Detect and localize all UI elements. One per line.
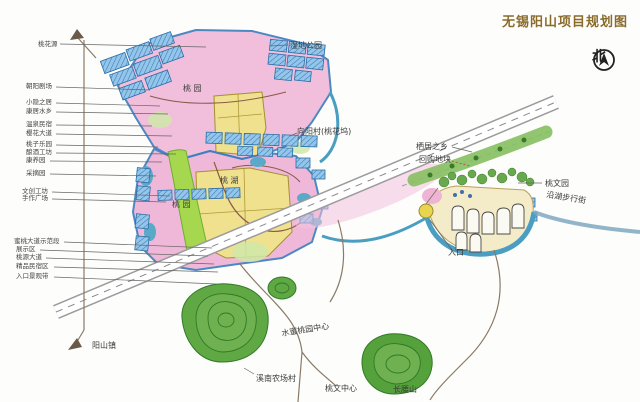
left-legend: 桃花源 朝阳剧场 小隐之居 康居水乡 温泉民宿 樱花大道 桃子乐园 酿酒工坊 康… [14,39,60,280]
label-orchard-top: 桃 园 [183,83,202,93]
label-wetland-park: 湿地公园 [290,40,322,50]
label-orchard-mid: 桃 园 [172,199,191,209]
legend-item: 小隐之居 [26,97,53,106]
legend-item: 朝阳剧场 [26,81,53,90]
label-lakeside-walk-street: 沿湖步行街 [546,189,587,205]
label-peach-culture-center: 桃文中心 [325,383,357,393]
legend-item: 桃子乐园 [26,139,52,148]
legend-item: 康居水乡 [26,106,52,115]
label-habitat-township: 栖居之乡 [416,141,448,151]
label-repurchase-parcel: 回购地块 [419,154,451,164]
label-peach-lake: 桃 湖 [220,175,239,185]
roundabout [419,204,433,218]
town-road-arrow [68,338,82,350]
north-road-arrow [70,29,84,40]
resort-cluster [419,168,640,254]
page-title: 无锡阳山项目规划图 [502,11,628,30]
label-xiangyang-village: 向阳村(桃花坞) [297,126,351,136]
label-entrance: 入口 [448,248,464,257]
legend-item: 酿酒工坊 [26,147,53,156]
big-hill [182,284,268,362]
legend-item: 精品民宿区 [16,261,49,270]
label-yangshan-town: 阳山镇 [92,340,116,350]
compass: 北 [592,48,606,64]
legend-item: 桃花源 [38,39,58,48]
compass-arrow-icon [592,48,616,72]
legend-item: 康养园 [26,155,46,164]
small-hill [268,277,296,299]
label-changyao-hill: 长腰山 [393,384,417,394]
map-canvas: 桃花源 朝阳剧场 小隐之居 康居水乡 温泉民宿 樱花大道 桃子乐园 酿酒工坊 康… [0,0,640,402]
legend-item: 展示区 [16,245,36,253]
legend-item: 温泉民宿 [26,119,53,128]
legend-item: 桃源大道 [16,252,43,261]
legend-item: 手作广场 [22,193,49,202]
planning-map-page: 桃花源 朝阳剧场 小隐之居 康居水乡 温泉民宿 樱花大道 桃子乐园 酿酒工坊 康… [0,0,640,402]
legend-item: 入口景观带 [16,272,49,280]
legend-item: 蜜桃大道示范段 [14,236,60,245]
legend-item: 樱花大道 [26,128,53,137]
label-peach-culture-park: 桃文园 [545,178,569,188]
label-peach-center-road: 水蜜桃园中心 [281,321,330,338]
legend-item: 采摘园 [26,168,46,177]
label-xinan-farm-village: 溪南农场村 [256,373,296,383]
